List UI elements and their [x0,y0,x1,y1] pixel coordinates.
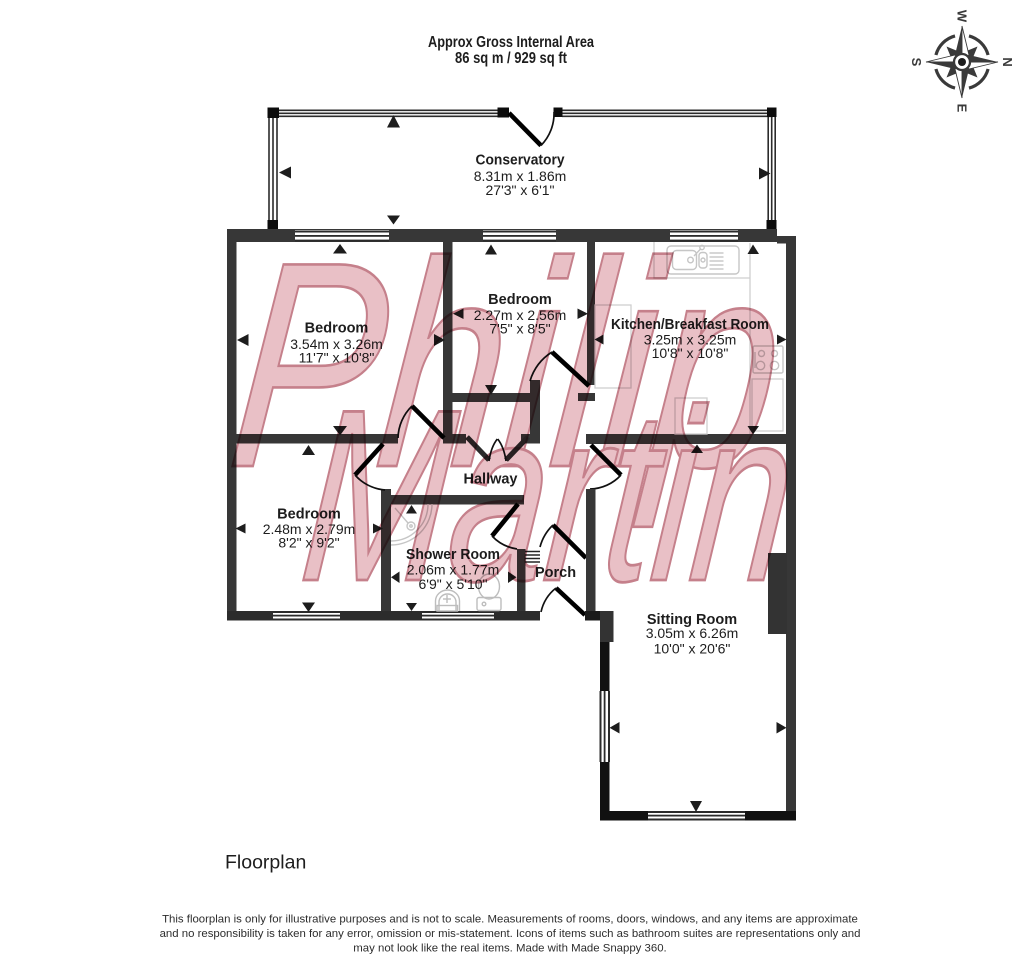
svg-text:27'3" x 6'1": 27'3" x 6'1" [486,182,555,198]
svg-text:10'0" x 20'6": 10'0" x 20'6" [654,641,731,657]
svg-text:S: S [909,58,924,67]
svg-text:Conservatory: Conservatory [476,153,565,169]
svg-text:86 sq m / 929 sq ft: 86 sq m / 929 sq ft [455,50,567,67]
svg-text:This floorplan is only for ill: This floorplan is only for illustrative … [162,914,858,926]
svg-text:Approx Gross Internal Area: Approx Gross Internal Area [428,34,594,51]
svg-text:and no responsibility is taken: and no responsibility is taken for any e… [160,928,861,940]
svg-text:W: W [955,10,970,23]
svg-text:Martin: Martin [293,360,807,633]
svg-text:Floorplan: Floorplan [225,852,306,874]
svg-text:N: N [1000,57,1015,66]
svg-text:E: E [955,104,970,113]
svg-text:may not look like the real ite: may not look like the real items. Made w… [353,943,666,955]
